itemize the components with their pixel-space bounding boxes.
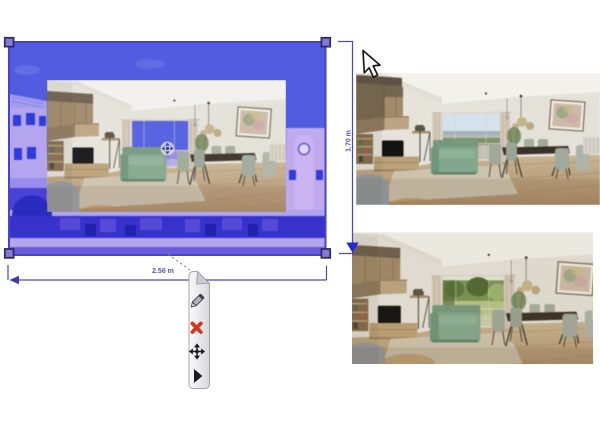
svg-text:1.70 m: 1.70 m xyxy=(346,130,353,152)
svg-text:2.56 m: 2.56 m xyxy=(152,268,174,275)
